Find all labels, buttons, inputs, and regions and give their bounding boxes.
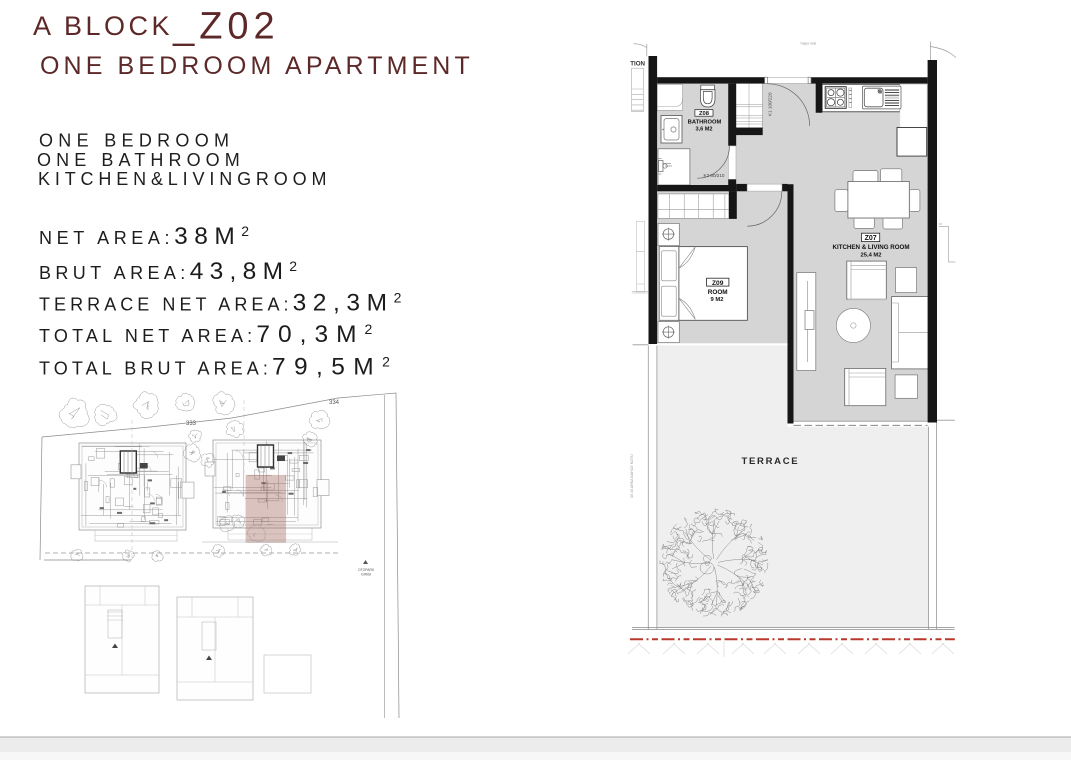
- svg-text:TERRACE: TERRACE: [742, 456, 800, 467]
- svg-text:BRUT AREA:43,8M2: BRUT AREA:43,8M2: [39, 258, 301, 285]
- svg-text:TOTAL BRUT AREA:79,5M2: TOTAL BRUT AREA:79,5M2: [39, 353, 394, 380]
- svg-text:ONE BATHROOM: ONE BATHROOM: [37, 150, 245, 170]
- svg-text:OTOPARK: OTOPARK: [358, 568, 375, 572]
- svg-text:TION: TION: [630, 61, 645, 68]
- svg-text:334: 334: [329, 400, 340, 406]
- svg-text:35.40 ARKA BAHCE KOTU: 35.40 ARKA BAHCE KOTU: [630, 454, 634, 498]
- svg-text:Z07: Z07: [865, 235, 877, 242]
- svg-text:ROOM: ROOM: [708, 289, 728, 296]
- svg-text:3,6 M2: 3,6 M2: [695, 127, 712, 133]
- svg-text:ONE BEDROOM APARTMENT: ONE BEDROOM APARTMENT: [40, 52, 474, 80]
- svg-text:hayo wal: hayo wal: [801, 41, 817, 46]
- svg-text:KITCHEN&LIVINGROOM: KITCHEN&LIVINGROOM: [38, 169, 331, 189]
- svg-text:25,4 M2: 25,4 M2: [861, 252, 882, 258]
- svg-text:K3 80/210: K3 80/210: [704, 173, 725, 178]
- svg-text:TERRACE NET AREA:32,3M2: TERRACE NET AREA:32,3M2: [39, 290, 406, 317]
- svg-text:Z08: Z08: [699, 111, 710, 117]
- svg-text:9 M2: 9 M2: [711, 297, 724, 303]
- svg-text:KITCHEN & LIVING ROOM: KITCHEN & LIVING ROOM: [833, 244, 910, 251]
- svg-text:K1 100/220: K1 100/220: [768, 92, 773, 116]
- svg-text:TOTAL NET AREA:70,3M2: TOTAL NET AREA:70,3M2: [39, 321, 376, 348]
- svg-text:Z09: Z09: [712, 280, 724, 287]
- svg-text:BATHROOM: BATHROOM: [688, 119, 722, 125]
- svg-text:GIRISI: GIRISI: [361, 573, 371, 577]
- svg-text:333: 333: [186, 421, 197, 427]
- svg-text:ONE BEDROOM: ONE BEDROOM: [39, 131, 234, 151]
- svg-text:NET AREA:38M2: NET AREA:38M2: [39, 223, 254, 250]
